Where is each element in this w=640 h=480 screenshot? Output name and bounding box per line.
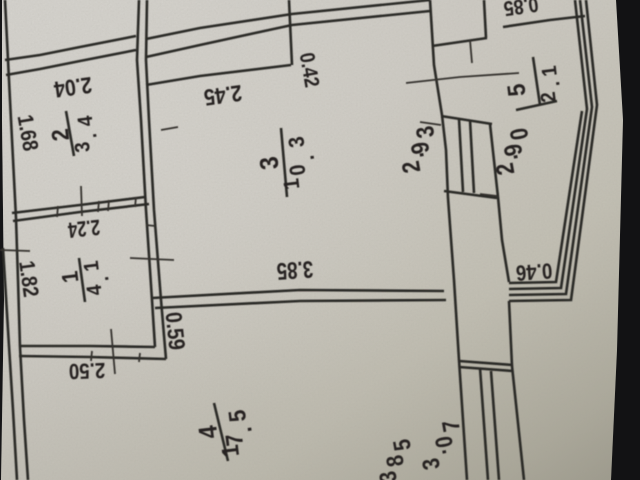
svg-text:3.85: 3.85 bbox=[276, 255, 314, 284]
svg-text:0.59: 0.59 bbox=[160, 311, 190, 352]
svg-text:2.24: 2.24 bbox=[67, 214, 102, 242]
svg-text:2.04: 2.04 bbox=[52, 72, 93, 103]
svg-text:2.50: 2.50 bbox=[68, 358, 105, 383]
svg-text:2.45: 2.45 bbox=[202, 80, 243, 111]
svg-text:0.46: 0.46 bbox=[515, 258, 553, 284]
svg-text:1.82: 1.82 bbox=[14, 259, 43, 298]
